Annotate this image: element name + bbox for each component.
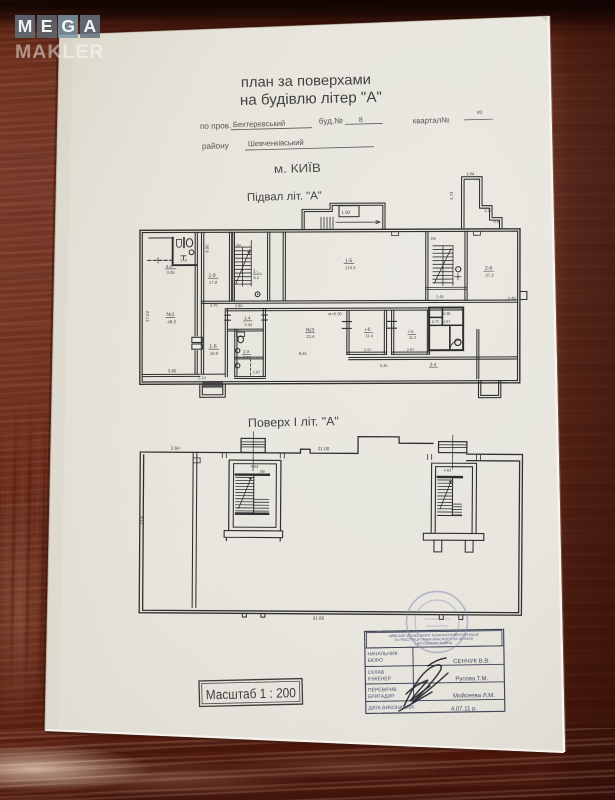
svg-text:2.97: 2.97	[243, 356, 250, 360]
svg-text:буд.№: буд.№	[319, 116, 344, 126]
svg-text:0.9: 0.9	[494, 219, 500, 224]
svg-text:1-3: 1-3	[243, 349, 250, 354]
svg-text:Масштаб 1 : 200: Масштаб 1 : 200	[206, 685, 296, 702]
svg-text:Поверх І літ. "А": Поверх І літ. "А"	[248, 414, 339, 430]
svg-text:1-9: 1-9	[208, 273, 215, 279]
svg-text:2.07: 2.07	[253, 371, 260, 375]
svg-text:№1: №1	[166, 312, 174, 318]
svg-text:Підвал літ. "А": Підвал літ. "А"	[247, 190, 322, 204]
svg-text:2.46: 2.46	[508, 296, 517, 301]
svg-text:2.97: 2.97	[364, 348, 371, 352]
svg-text:31.80: 31.80	[313, 616, 325, 621]
svg-text:1.20: 1.20	[484, 208, 493, 213]
svg-text:1.87: 1.87	[443, 320, 450, 324]
svg-text:по пров.: по пров.	[200, 121, 232, 131]
svg-text:из: из	[477, 110, 483, 116]
svg-text:2-4: 2-4	[430, 362, 437, 367]
svg-text:Русова Т.М.: Русова Т.М.	[455, 676, 488, 683]
svg-text:0.98: 0.98	[443, 312, 450, 316]
svg-text:4.2: 4.2	[253, 275, 259, 280]
svg-text:3Θ: 3Θ	[235, 243, 240, 248]
svg-text:16.9: 16.9	[210, 351, 219, 356]
svg-text:5.45: 5.45	[380, 363, 389, 368]
svg-text:ПЕРЕВІРИВ: ПЕРЕВІРИВ	[368, 687, 397, 693]
svg-text:8.46: 8.46	[299, 351, 308, 356]
svg-text:квартал№: квартал№	[413, 115, 450, 125]
svg-text:4.6: 4.6	[166, 264, 172, 269]
svg-text:району: району	[202, 141, 230, 151]
svg-text:174.3: 174.3	[345, 265, 356, 270]
svg-text:Мойсеева Л.М.: Мойсеева Л.М.	[453, 692, 495, 700]
svg-text:1.46: 1.46	[436, 294, 445, 299]
svg-text:3.70: 3.70	[210, 303, 219, 308]
svg-text:2-б: 2-б	[485, 266, 492, 272]
svg-text:на будівлю літер "А": на будівлю літер "А"	[240, 89, 382, 109]
svg-text:4.63: 4.63	[444, 468, 451, 472]
svg-text:11.4: 11.4	[365, 333, 373, 338]
svg-text:1.93: 1.93	[342, 210, 351, 215]
svg-text:1-5: 1-5	[345, 258, 352, 264]
svg-text:17.02: 17.02	[145, 310, 150, 322]
svg-text:3.80: 3.80	[168, 368, 177, 373]
svg-text:СЕНЧУК В.В.: СЕНЧУК В.В.	[453, 659, 490, 666]
svg-text:ІНЖЕНЕР: ІНЖЕНЕР	[368, 676, 392, 682]
svg-text:4.07.11 р.: 4.07.11 р.	[451, 706, 478, 712]
svg-text:8: 8	[359, 117, 363, 124]
svg-text:2.97: 2.97	[407, 348, 414, 352]
svg-text:план за поверхами: план за поверхами	[241, 72, 371, 91]
svg-text:21.00: 21.00	[318, 446, 330, 451]
svg-text:8.90: 8.90	[204, 244, 209, 253]
svg-text:1-4: 1-4	[244, 316, 251, 321]
svg-text:1.94: 1.94	[466, 171, 475, 176]
svg-text:4.63: 4.63	[251, 465, 258, 469]
svg-text:БРИГАДИР: БРИГАДИР	[368, 694, 395, 700]
svg-text:2-10: 2-10	[198, 375, 207, 380]
svg-text:11.2: 11.2	[409, 335, 417, 340]
svg-text:Бехтеревський: Бехтеревський	[233, 119, 286, 129]
svg-text:СКЛАВ: СКЛАВ	[368, 670, 385, 676]
svg-text:НАЧАЛЬНИК: НАЧАЛЬНИК	[367, 651, 397, 657]
svg-text:2Θ: 2Θ	[430, 236, 435, 241]
svg-text:37.3: 37.3	[485, 273, 494, 278]
svg-text:1-...: 1-...	[253, 269, 261, 274]
svg-text:21.4: 21.4	[306, 334, 315, 339]
svg-text:1-б: 1-б	[209, 344, 216, 350]
svg-text:13.8: 13.8	[140, 516, 145, 525]
svg-text:м=0.30: м=0.30	[328, 311, 342, 316]
svg-text:9.43: 9.43	[244, 322, 253, 327]
svg-text:3.05: 3.05	[166, 270, 175, 275]
svg-text:м. КИЇВ: м. КИЇВ	[274, 161, 321, 176]
svg-text:2.84: 2.84	[171, 446, 180, 451]
svg-text:2.80: 2.80	[235, 303, 244, 308]
svg-text:4.73: 4.73	[449, 191, 454, 200]
svg-text:1.са: 1.са	[180, 258, 188, 262]
svg-text:0.75: 0.75	[432, 320, 439, 324]
svg-text:Шевченківський: Шевченківський	[248, 138, 304, 148]
svg-text:17.9: 17.9	[209, 280, 218, 285]
svg-text:48.3: 48.3	[167, 319, 176, 324]
svg-text:БЮРО: БЮРО	[368, 658, 384, 664]
svg-text:3Θ: 3Θ	[260, 470, 265, 474]
